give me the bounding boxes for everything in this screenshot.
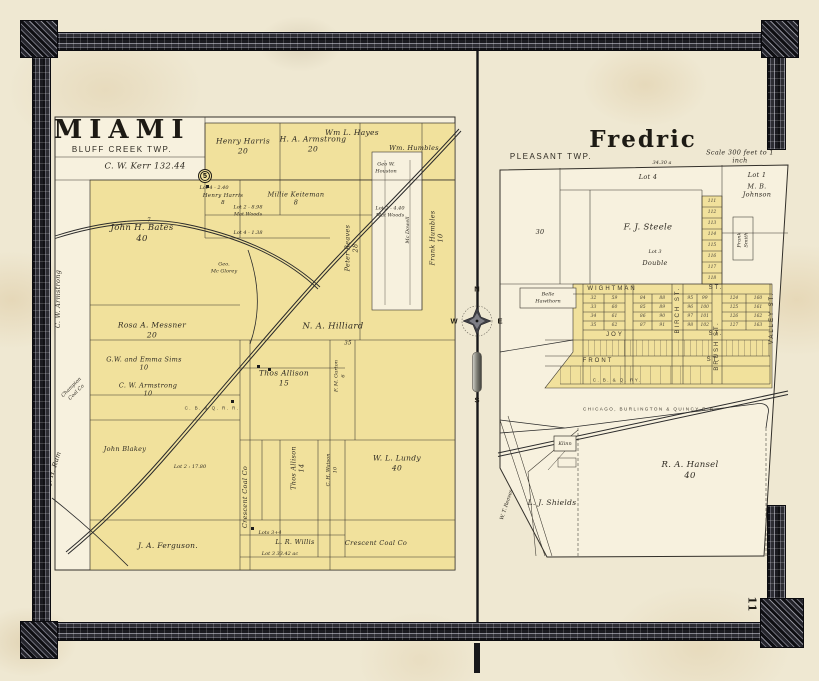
- parcel-label-lot3: Lot 3: [648, 249, 661, 256]
- lot-number: 84: [633, 294, 653, 303]
- fredric-title: Fredric: [589, 125, 697, 155]
- parcel-label-lot1: Lot 1: [748, 171, 767, 179]
- street-joy: JOY: [606, 332, 624, 338]
- lot-number: 124: [722, 294, 746, 303]
- lot-number: 101: [698, 312, 713, 321]
- plat-map-linework: [0, 0, 819, 681]
- street-brush: BRUSH ST.: [714, 321, 720, 370]
- parcel-label-henry-harris: Henry Harris 20: [216, 136, 270, 156]
- fredric-block-4-lots: 124160 125161 126162 127163: [722, 294, 770, 330]
- lot-number: 112: [702, 207, 722, 218]
- miami-map: [52, 117, 461, 570]
- parcel-label-messner: Rosa A. Messner 20: [118, 320, 186, 340]
- border-corner-topleft: [20, 20, 58, 58]
- compass-south-label: S: [474, 396, 479, 405]
- lot-number: 33: [583, 303, 604, 312]
- lot-number: 91: [653, 321, 673, 330]
- fredric-block-1-lots: 3259 3360 3461 3562: [583, 294, 625, 330]
- miami-mcdowell-strip: [372, 152, 422, 310]
- compass-north-label: N: [474, 285, 479, 294]
- lot-number: 113: [702, 218, 722, 229]
- parcel-label-smith: Frank Smith: [737, 232, 750, 247]
- lot-number: 88: [653, 294, 673, 303]
- lot-number: 96: [683, 303, 698, 312]
- lot-number: 116: [702, 251, 722, 262]
- lot-number: 86: [633, 312, 653, 321]
- parcel-label-mcdowell: Mc Dowell: [405, 217, 412, 244]
- parcel-label-hawthorn: Belle Hawthorn: [535, 292, 560, 305]
- lot-number: 100: [698, 303, 713, 312]
- fredric-scale-note: Scale 300 feet to 1 inch: [701, 149, 780, 166]
- street-front: FRONT: [583, 358, 614, 364]
- border-left: [32, 32, 51, 641]
- miami-subtitle: BLUFF CREEK TWP.: [72, 145, 172, 155]
- lot-number: 89: [653, 303, 673, 312]
- parcel-label-sims: G.W. and Emma Sims 10: [106, 356, 181, 373]
- parcel-label-cw-armstrong10: C. W. Armstrong 10: [119, 382, 177, 399]
- lot-number: 162: [746, 312, 770, 321]
- parcel-label-crescent-vertical: Crescent Coal Co: [241, 466, 249, 528]
- parcel-label-hilliard: N. A. Hilliard: [303, 321, 364, 332]
- parcel-label-lot4: Lot 4: [639, 173, 658, 181]
- page-number: 11: [746, 596, 759, 611]
- parcel-label-lundy: W. L. Lundy 40: [373, 453, 421, 473]
- parcel-label-frank-humbles: Frank Humbles 10: [429, 210, 446, 265]
- parcel-label-lot2-1780: Lot 2 : 17.80: [174, 464, 206, 471]
- fredric-railroad-label-short: C. B. & Q. RY.: [593, 378, 642, 383]
- atlas-page: MIAMI BLUFF CREEK TWP. C. W. Kerr 132.44…: [0, 0, 819, 681]
- parcel-label-ferguson: J. A. Ferguson.: [138, 541, 198, 551]
- lot-number: 97: [683, 312, 698, 321]
- parcel-label-lots34: Lots 3+4: [258, 530, 281, 537]
- lot-number: 35: [583, 321, 604, 330]
- street-wightman: WIGHTMAN: [587, 286, 636, 292]
- parcel-label-keiteman: Millie Keiteman 8: [268, 191, 325, 208]
- parcel-label-hansel: R. A. Hansel 40: [661, 460, 718, 482]
- parcel-label-gurton: F. M. Gurton 6: [334, 360, 347, 392]
- parcel-label-hilliard-acres: 35: [344, 340, 352, 347]
- parcel-label-lot3-3342: Lot 3 33.42 ac: [262, 551, 298, 558]
- lot-number: 32: [583, 294, 604, 303]
- parcel-label-reaves: Peter Reaves 28: [344, 225, 361, 272]
- border-corner-bottomright: [760, 598, 804, 648]
- fredric-block-3-lots: 9599 96100 97101 98102: [683, 294, 712, 330]
- parcel-label-mcglorey: Geo. Mc Glorey: [211, 262, 237, 275]
- parcel-label-lot4-138: Lot 4 - 1.38: [233, 230, 262, 237]
- lot-number: 62: [604, 321, 625, 330]
- parcel-label-double: Double: [642, 259, 667, 267]
- fredric-strip-lot-numbers: 111 112 113 114 115 116 117 118: [702, 196, 722, 284]
- lot-number: 87: [633, 321, 653, 330]
- lot-number: 114: [702, 229, 722, 240]
- parcel-label-johnson: M. B. Johnson: [743, 183, 771, 200]
- parcel-label-watson: C. H. Watson 10: [326, 454, 339, 487]
- compass-east-label: E: [497, 317, 502, 326]
- parcel-label-crescent-horizontal: Crescent Coal Co: [345, 539, 407, 547]
- parcel-label-cw-armstrong-edge: C. W. Armstrong: [54, 270, 62, 328]
- lot-number: 160: [746, 294, 770, 303]
- lot-number: 126: [722, 312, 746, 321]
- parcel-label-allison14: Thos Allison 14: [290, 446, 307, 490]
- parcel-label-blakey: John Blakey: [104, 445, 146, 453]
- border-top: [30, 32, 788, 51]
- lot-number: 163: [746, 321, 770, 330]
- parcel-label-houston: Geo W. Houston: [375, 162, 396, 175]
- parcel-label-hayes: Wm L. Hayes: [325, 128, 379, 138]
- parcel-label-acres3430: 34.30 a: [653, 160, 672, 167]
- parcel-label-kerr: C. W. Kerr 132.44: [104, 161, 185, 172]
- parcel-label-matwoods1: Lot 2 - 8.98 Mat Woods: [233, 205, 262, 218]
- lot-number: 85: [633, 303, 653, 312]
- parcel-label-wm-humbles: Wm. Humbles: [389, 144, 439, 152]
- lot-number: 60: [604, 303, 625, 312]
- parcel-label-thirty: 30: [536, 228, 545, 236]
- lot-number: 98: [683, 321, 698, 330]
- lot-number: 34: [583, 312, 604, 321]
- miami-title: MIAMI: [53, 114, 190, 148]
- border-bottom: [30, 622, 788, 641]
- fredric-railroad-label-full: CHICAGO, BURLINGTON & QUINCY R.R.: [583, 407, 717, 412]
- lot-number: 61: [604, 312, 625, 321]
- parcel-label-bates: John H. Bates 40: [110, 223, 173, 245]
- lot-number: 111: [702, 196, 722, 207]
- miami-railroad-label: C. B. & Q. R. R.: [185, 406, 240, 411]
- section-number-badge: 5: [198, 169, 212, 183]
- lot-number: 95: [683, 294, 698, 303]
- parcel-label-seven: 7: [147, 217, 151, 224]
- lot-number: 102: [698, 321, 713, 330]
- lot-number: 99: [698, 294, 713, 303]
- border-corner-bottomleft: [20, 621, 58, 659]
- parcel-label-steele: F. J. Steele: [624, 222, 673, 233]
- lot-number: 161: [746, 303, 770, 312]
- lot-number: 127: [722, 321, 746, 330]
- border-corner-topright: [761, 20, 799, 58]
- parcel-label-shields: L. J. Shields: [528, 498, 577, 508]
- fredric-township: PLEASANT TWP.: [510, 152, 592, 162]
- fredric-block-2-lots: 8488 8589 8690 8791: [633, 294, 672, 330]
- lot-number: 118: [702, 273, 722, 284]
- lot-number: 59: [604, 294, 625, 303]
- street-birch: BIRCH ST.: [675, 286, 681, 333]
- street-wightman-suffix: ST.: [709, 285, 724, 291]
- lot-number: 90: [653, 312, 673, 321]
- parcel-label-allison15: Thos Allison 15: [259, 368, 309, 388]
- lot-number: 125: [722, 303, 746, 312]
- compass-scale-capsule: [473, 352, 482, 392]
- parcel-label-willis: L. R. Willis: [275, 538, 314, 546]
- parcel-label-klinn: Klinn: [558, 441, 571, 448]
- lot-number: 117: [702, 262, 722, 273]
- compass-west-label: W: [450, 317, 457, 326]
- parcel-label-matwoods2: Lot 2 - 4.40 Mat Woods: [375, 206, 404, 219]
- parcel-label-lot4-240: Lot 4 - 2.40: [199, 185, 228, 192]
- lot-number: 115: [702, 240, 722, 251]
